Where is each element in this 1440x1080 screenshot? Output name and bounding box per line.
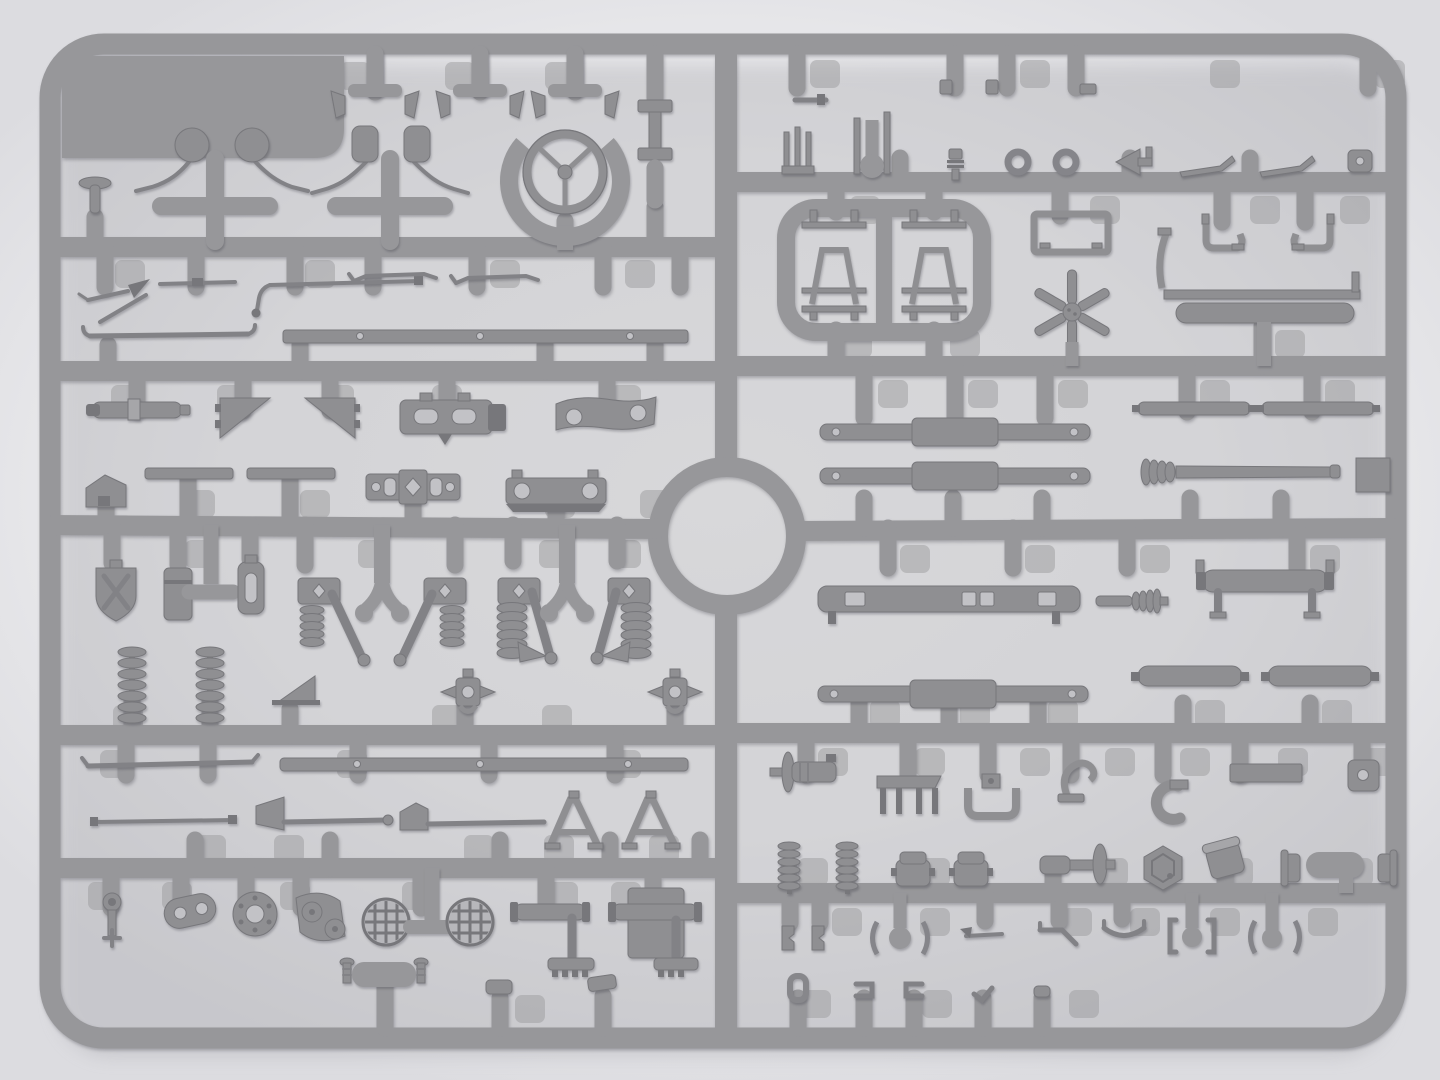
part-pulley-plate — [296, 893, 345, 940]
part-cap-a — [1281, 850, 1300, 886]
part-curved-plate — [556, 397, 656, 430]
ejector-pad — [1020, 60, 1050, 88]
ejector-pad — [1105, 748, 1135, 776]
part-twin-rods — [854, 112, 890, 178]
part-cylinder-a — [1131, 666, 1249, 686]
ejector-pad — [1180, 748, 1210, 776]
part-square-washer — [1348, 760, 1379, 791]
part-cap-b — [1378, 850, 1397, 886]
part-flat-bar-holes — [283, 330, 688, 343]
ejector-pad — [515, 995, 545, 1023]
ejector-pad — [1275, 330, 1305, 358]
part-mini-drum — [1348, 150, 1372, 172]
part-axle-a — [1132, 402, 1256, 415]
mirror-head — [235, 128, 269, 162]
ejector-pad — [900, 545, 930, 573]
ejector-pad — [1020, 748, 1050, 776]
part-grille-b — [447, 899, 493, 945]
part-grille-a — [363, 899, 409, 945]
mirror-head — [175, 128, 209, 162]
ejector-pad — [1140, 545, 1170, 573]
ejector-pad — [968, 380, 998, 408]
ejector-pad — [922, 990, 952, 1018]
part-mini-nub — [1034, 986, 1050, 997]
part-cylinder-b — [1261, 666, 1379, 686]
sprue-svg — [0, 0, 1440, 1080]
part-strip-holes — [280, 758, 688, 771]
ejector-pad — [1069, 990, 1099, 1018]
sprue-photo — [0, 0, 1440, 1080]
ejector-pad — [798, 858, 828, 886]
ejector-pad — [878, 380, 908, 408]
part-tiny-cylinder-a — [486, 980, 512, 994]
ejector-pad — [1210, 60, 1240, 88]
part-trident — [782, 127, 814, 174]
mirror-head — [404, 126, 430, 162]
part-axle-b — [1256, 402, 1380, 415]
ejector-pad — [810, 60, 840, 88]
part-diamond-plate — [366, 470, 460, 504]
part-flat-bar-b — [247, 468, 335, 479]
ejector-pad — [1058, 380, 1088, 408]
ejector-pad — [625, 260, 655, 288]
ejector-pad — [1310, 545, 1340, 573]
part-plain-plate — [1230, 764, 1302, 782]
ejector-pad — [490, 260, 520, 288]
ejector-pad — [1250, 196, 1280, 224]
part-tiny-plate-c — [1080, 84, 1096, 94]
part-slot-cylinder — [238, 555, 264, 614]
part-tiny-plate-a — [940, 80, 952, 94]
mirror-head — [352, 126, 378, 162]
part-flat-bar-a — [145, 468, 233, 479]
ejector-pad — [300, 490, 330, 518]
ejector-pad — [832, 908, 862, 936]
part-tiny-plate-b — [986, 80, 998, 94]
part-cylinder — [86, 399, 190, 420]
ejector-pad — [1340, 196, 1370, 224]
ejector-pad — [1025, 545, 1055, 573]
part-block — [1356, 458, 1390, 492]
part-flange-disc — [233, 892, 277, 936]
ejector-pad — [1308, 908, 1338, 936]
ejector-pad — [915, 748, 945, 776]
